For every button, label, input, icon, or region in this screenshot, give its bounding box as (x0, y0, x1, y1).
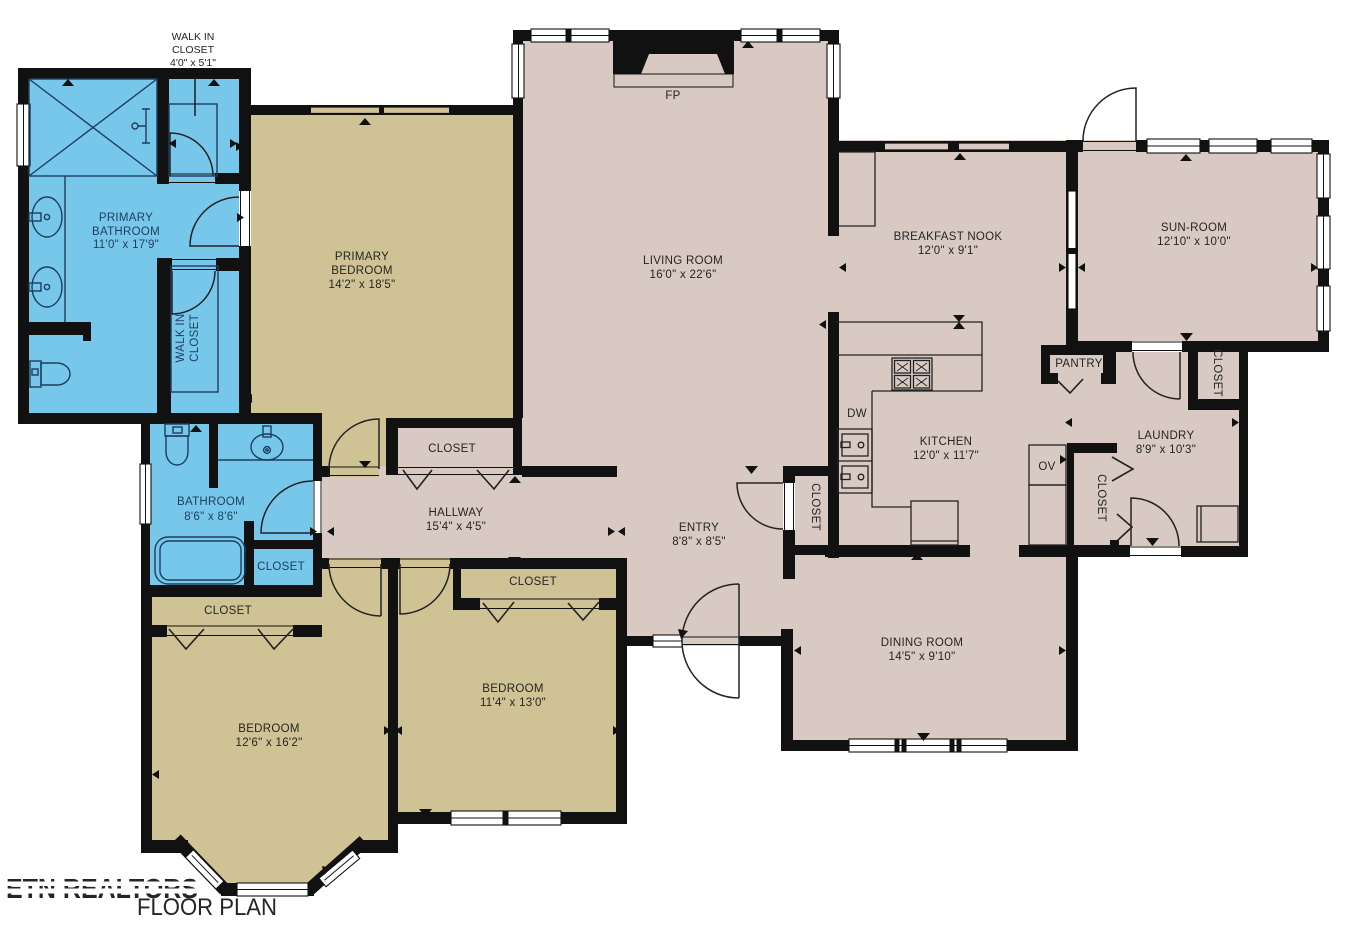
svg-text:KITCHEN: KITCHEN (920, 436, 973, 448)
svg-text:BREAKFAST NOOK: BREAKFAST NOOK (894, 231, 1003, 243)
svg-text:ENTRY: ENTRY (679, 522, 719, 534)
svg-text:BEDROOM: BEDROOM (331, 265, 393, 277)
svg-text:CLOSET: CLOSET (204, 605, 252, 617)
svg-text:CLOSET: CLOSET (1211, 349, 1223, 397)
svg-text:HALLWAY: HALLWAY (429, 507, 484, 519)
svg-text:FLOOR PLAN: FLOOR PLAN (137, 894, 277, 921)
svg-text:WALK IN: WALK IN (172, 31, 215, 43)
svg-text:CLOSET: CLOSET (428, 443, 476, 455)
svg-text:CLOSET: CLOSET (172, 44, 215, 56)
svg-text:8'6" x 8'6": 8'6" x 8'6" (184, 511, 238, 523)
svg-text:BATHROOM: BATHROOM (92, 226, 160, 238)
svg-text:12'0" x 11'7": 12'0" x 11'7" (913, 450, 979, 462)
svg-text:12'10" x 10'0": 12'10" x 10'0" (1157, 236, 1231, 248)
svg-text:CLOSET: CLOSET (189, 314, 201, 362)
svg-text:OV: OV (1038, 461, 1055, 473)
svg-text:SUN-ROOM: SUN-ROOM (1161, 222, 1227, 234)
svg-text:4'0" x 5'1": 4'0" x 5'1" (170, 57, 216, 69)
svg-text:8'8" x 8'5": 8'8" x 8'5" (672, 536, 726, 548)
svg-text:DINING ROOM: DINING ROOM (881, 637, 964, 649)
svg-text:BATHROOM: BATHROOM (177, 496, 245, 508)
svg-text:14'2" x 18'5": 14'2" x 18'5" (329, 279, 396, 291)
svg-text:PRIMARY: PRIMARY (335, 251, 389, 263)
svg-text:FP: FP (665, 90, 680, 102)
svg-text:15'4" x 4'5": 15'4" x 4'5" (426, 521, 486, 533)
svg-text:16'0" x 22'6": 16'0" x 22'6" (650, 269, 717, 281)
svg-text:WALK IN: WALK IN (175, 314, 187, 363)
svg-text:CLOSET: CLOSET (1095, 474, 1107, 522)
svg-text:BEDROOM: BEDROOM (238, 723, 300, 735)
svg-text:LAUNDRY: LAUNDRY (1138, 430, 1195, 442)
svg-text:CLOSET: CLOSET (257, 561, 305, 573)
svg-text:11'4" x 13'0": 11'4" x 13'0" (480, 697, 546, 709)
svg-text:14'5" x 9'10": 14'5" x 9'10" (889, 651, 956, 663)
svg-text:BEDROOM: BEDROOM (482, 683, 544, 695)
svg-text:12'6" x 16'2": 12'6" x 16'2" (236, 737, 303, 749)
svg-text:CLOSET: CLOSET (509, 576, 557, 588)
svg-text:DW: DW (847, 408, 867, 420)
svg-text:PRIMARY: PRIMARY (99, 212, 153, 224)
svg-text:PANTRY: PANTRY (1055, 358, 1102, 370)
svg-text:LIVING ROOM: LIVING ROOM (643, 255, 723, 267)
svg-text:8'9" x 10'3": 8'9" x 10'3" (1136, 444, 1196, 456)
svg-text:11'0" x 17'9": 11'0" x 17'9" (93, 239, 159, 251)
svg-text:CLOSET: CLOSET (809, 483, 821, 531)
svg-text:12'0" x 9'1": 12'0" x 9'1" (918, 245, 978, 257)
